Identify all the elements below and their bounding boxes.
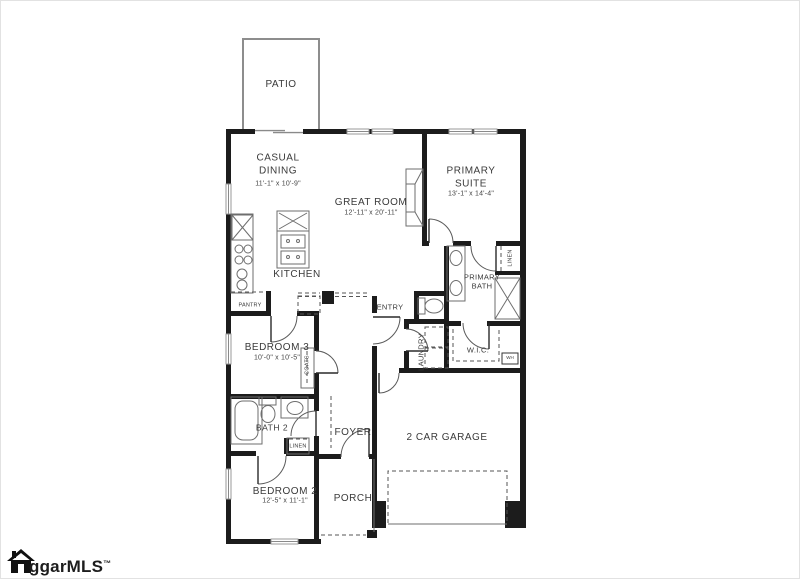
room-label-entry: ENTRY [377, 302, 404, 311]
room-label-porch: PORCH [334, 493, 373, 506]
room-label-foyer: FOYER [335, 427, 372, 440]
room-label-garage: 2 CAR GARAGE [406, 432, 487, 445]
room-label-laundry: LAUNDRY [416, 333, 425, 371]
room-label-water-heater: WH [506, 355, 514, 361]
room-label-patio: PATIO [265, 79, 296, 92]
room-dims-casual-dining: 11'-1" x 10'-9" [255, 181, 301, 190]
room-label-great-room: GREAT ROOM [335, 197, 407, 210]
room-label-pantry: PANTRY [238, 303, 261, 310]
room-label-bedroom-2: BEDROOM 2 [253, 486, 318, 499]
room-label-primary-suite: PRIMARY SUITE [445, 166, 497, 191]
room-label-linen-primary: LINEN [508, 249, 515, 266]
room-label-bedroom-3: BEDROOM 3 [245, 342, 310, 355]
room-label-casual-dining: CASUAL DINING [249, 153, 307, 178]
mls-watermark: ggarMLS™ [5, 547, 111, 577]
room-label-linen-hall: LINEN [289, 444, 306, 451]
room-label-coats: COATS [305, 355, 312, 375]
room-label-bath-2: BATH 2 [256, 423, 288, 434]
floor-plan-drawing [1, 1, 800, 579]
room-dims-primary-suite: 13'-1" x 14'-4" [448, 191, 494, 200]
room-label-kitchen: KITCHEN [273, 269, 320, 282]
room-label-wic: W.I.C. [467, 345, 489, 354]
room-label-primary-bath: PRIMARY BATH [458, 273, 506, 292]
room-dims-bedroom-2: 12'-5" x 11'-1" [262, 498, 308, 507]
mls-brand-text: ggarMLS™ [29, 557, 111, 577]
room-dims-bedroom-3: 10'-0" x 10'-5" [254, 355, 300, 364]
room-dims-great-room: 12'-11" x 20'-11" [344, 210, 397, 219]
floor-plan-page: PATIO CASUAL DINING 11'-1" x 10'-9" GREA… [0, 0, 800, 579]
